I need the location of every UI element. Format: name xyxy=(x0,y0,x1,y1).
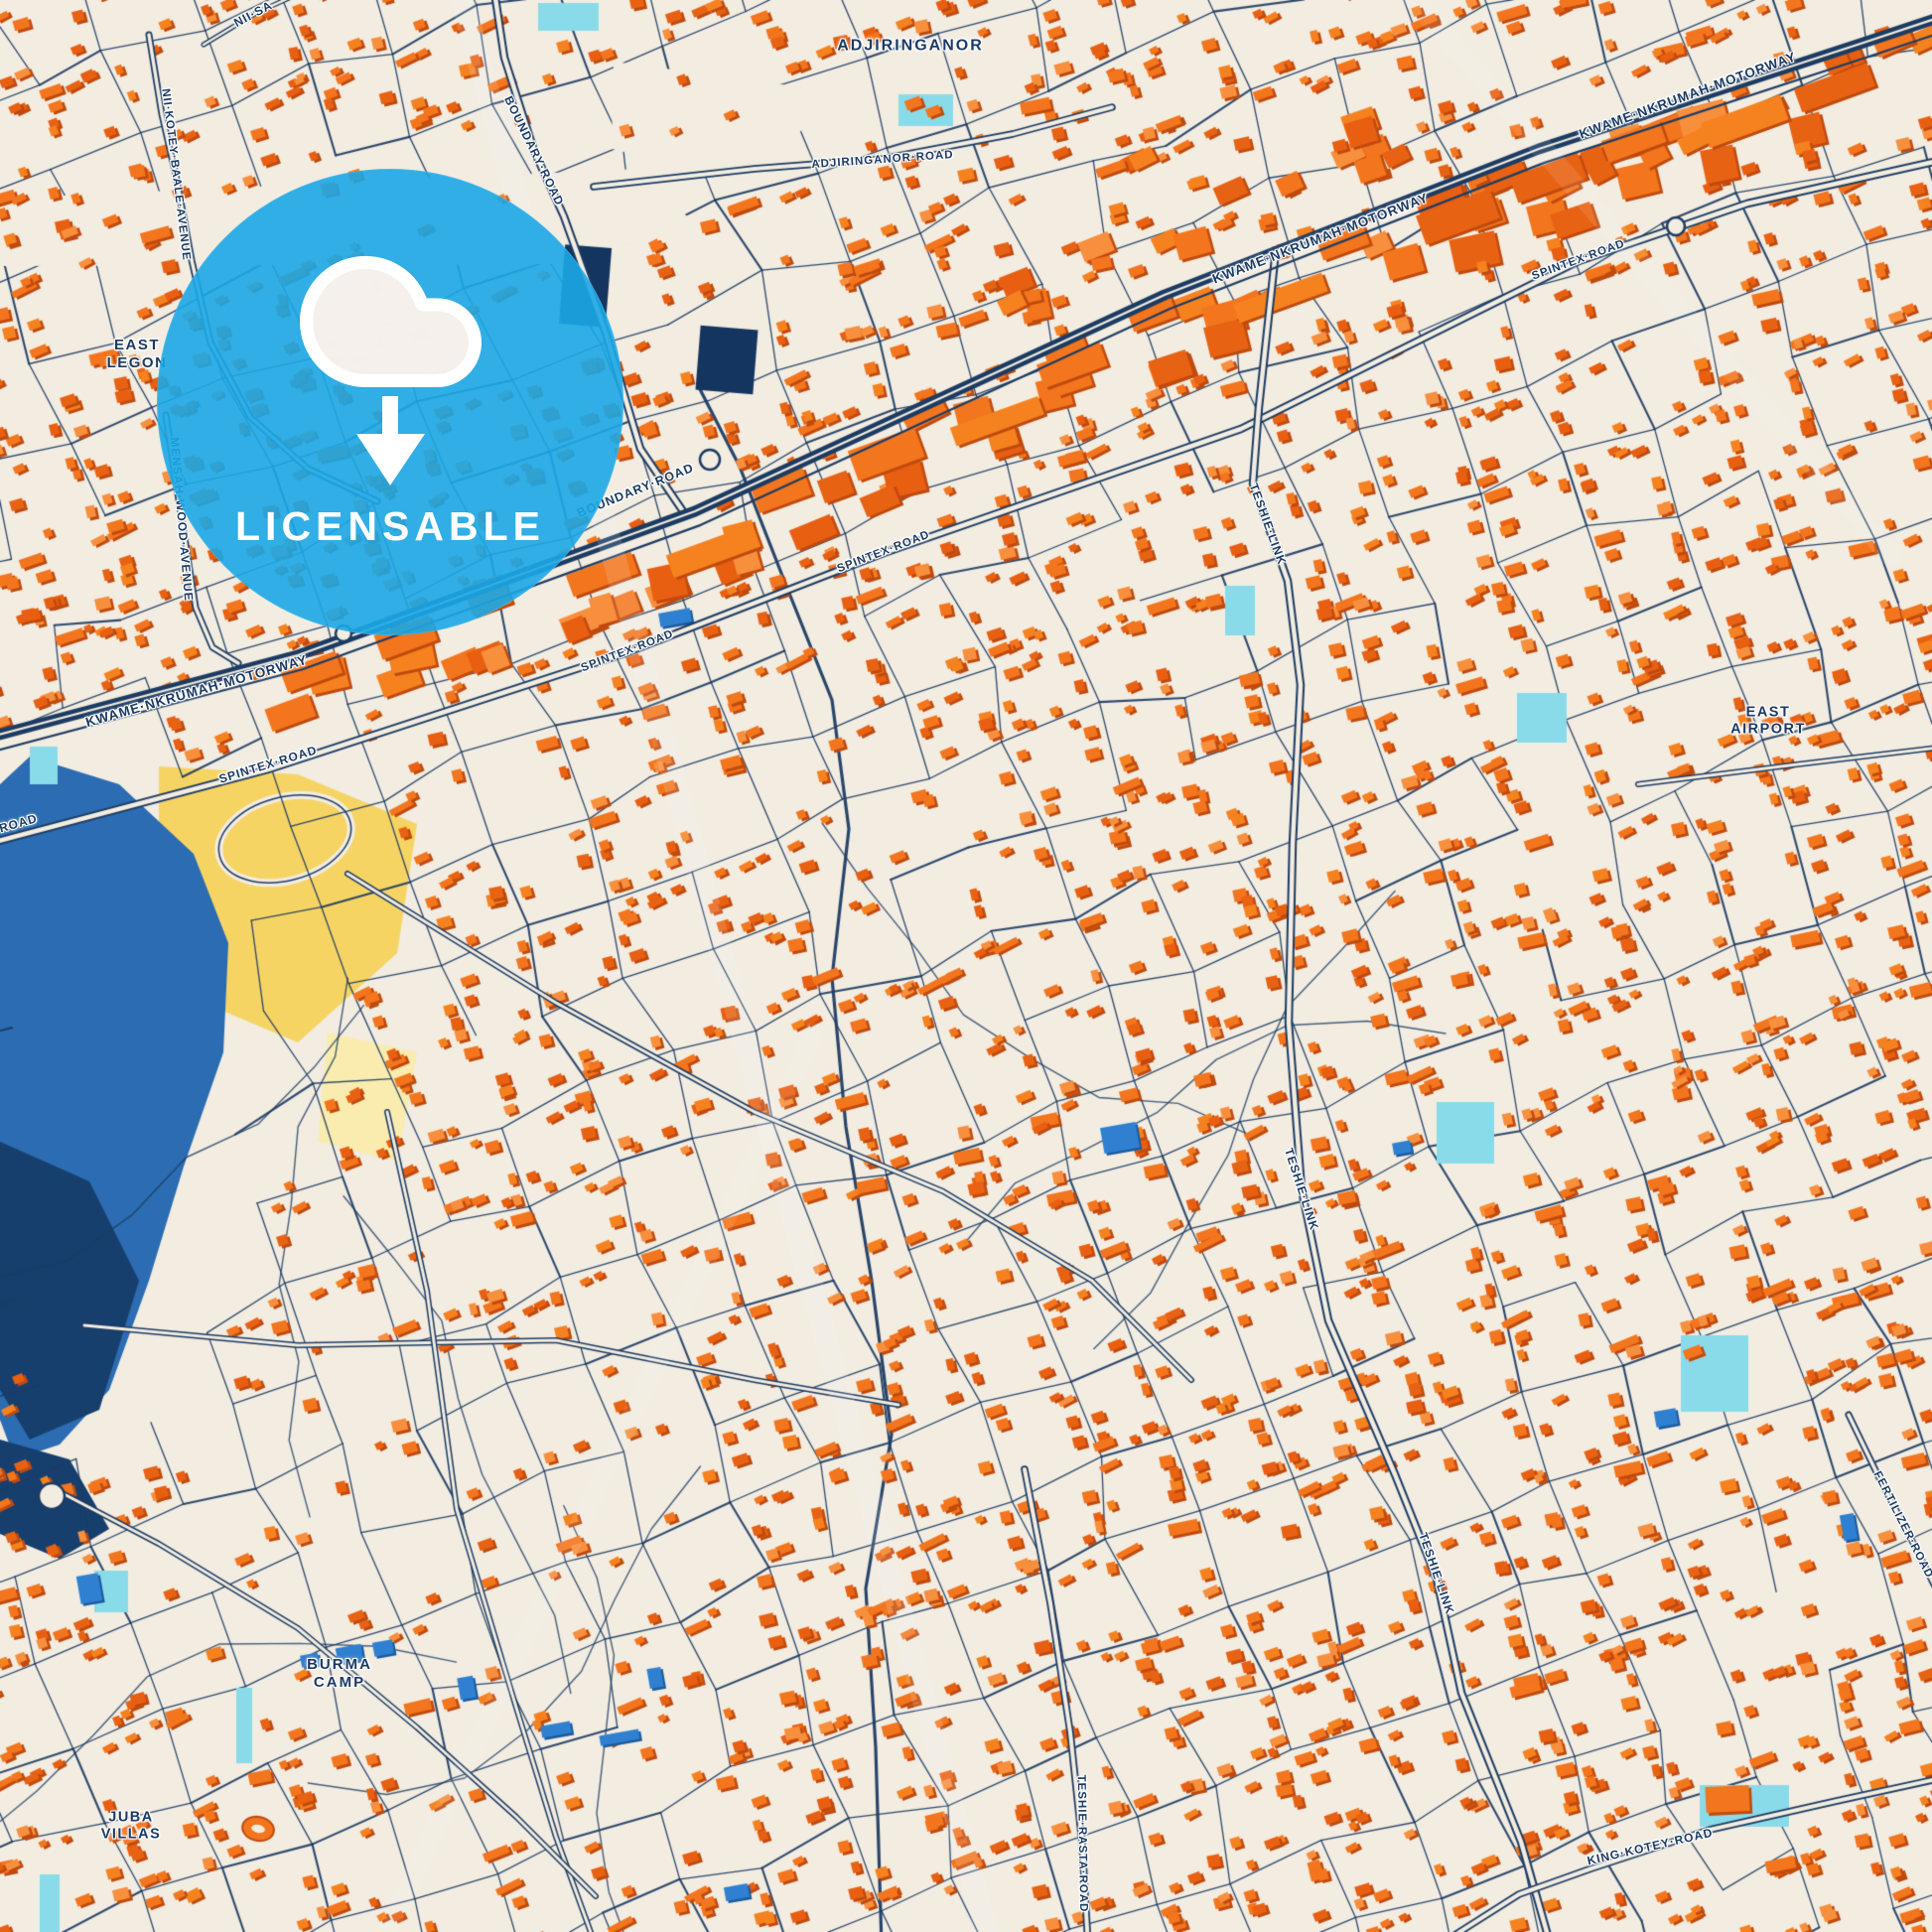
map-stage: NII·KOTEY·BAALE·AVENUENII·SAADJIRINGANOR… xyxy=(0,0,1932,1932)
cloud-download-icon xyxy=(289,220,492,394)
licensable-badge[interactable]: LICENSABLE xyxy=(157,169,623,635)
download-arrow-icon xyxy=(347,396,433,487)
badge-label: LICENSABLE xyxy=(235,503,545,550)
